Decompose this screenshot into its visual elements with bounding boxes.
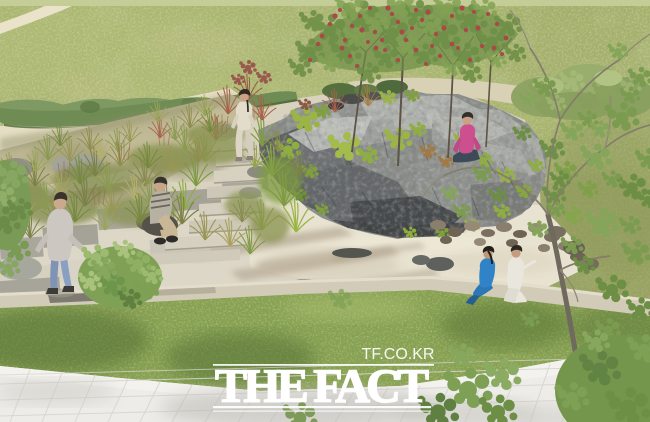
svg-text:THE FACT: THE FACT (215, 360, 429, 413)
